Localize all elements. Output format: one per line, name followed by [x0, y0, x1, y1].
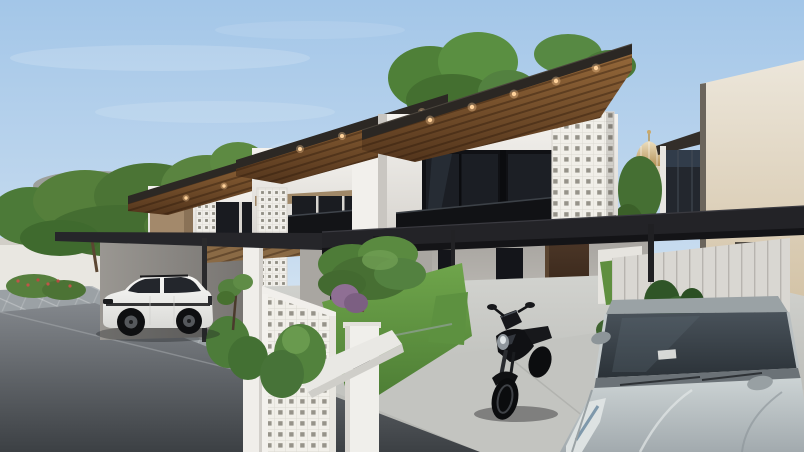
- pillar-shade: [345, 326, 350, 452]
- motorcycle-shadow: [474, 406, 558, 422]
- mirror: [525, 302, 535, 308]
- headlight-lens: [500, 336, 506, 344]
- purple-shrub: [344, 293, 368, 313]
- suv-pillar: [160, 278, 164, 293]
- mirror: [487, 304, 497, 310]
- suv-trim-stripe: [106, 303, 210, 306]
- architectural-render: [0, 0, 804, 452]
- suv-grille: [103, 299, 113, 304]
- render-canvas: [0, 0, 804, 452]
- wheel-hub: [129, 320, 133, 324]
- suv-taillight: [208, 296, 212, 305]
- cloud: [95, 101, 335, 123]
- suv-roof-rail: [140, 276, 188, 277]
- cloud: [215, 21, 405, 39]
- windshield-sticker: [658, 349, 677, 360]
- suv-shadow: [96, 326, 220, 342]
- wheel-hub: [187, 319, 191, 323]
- canopy-post: [648, 224, 654, 282]
- cloud: [10, 45, 310, 71]
